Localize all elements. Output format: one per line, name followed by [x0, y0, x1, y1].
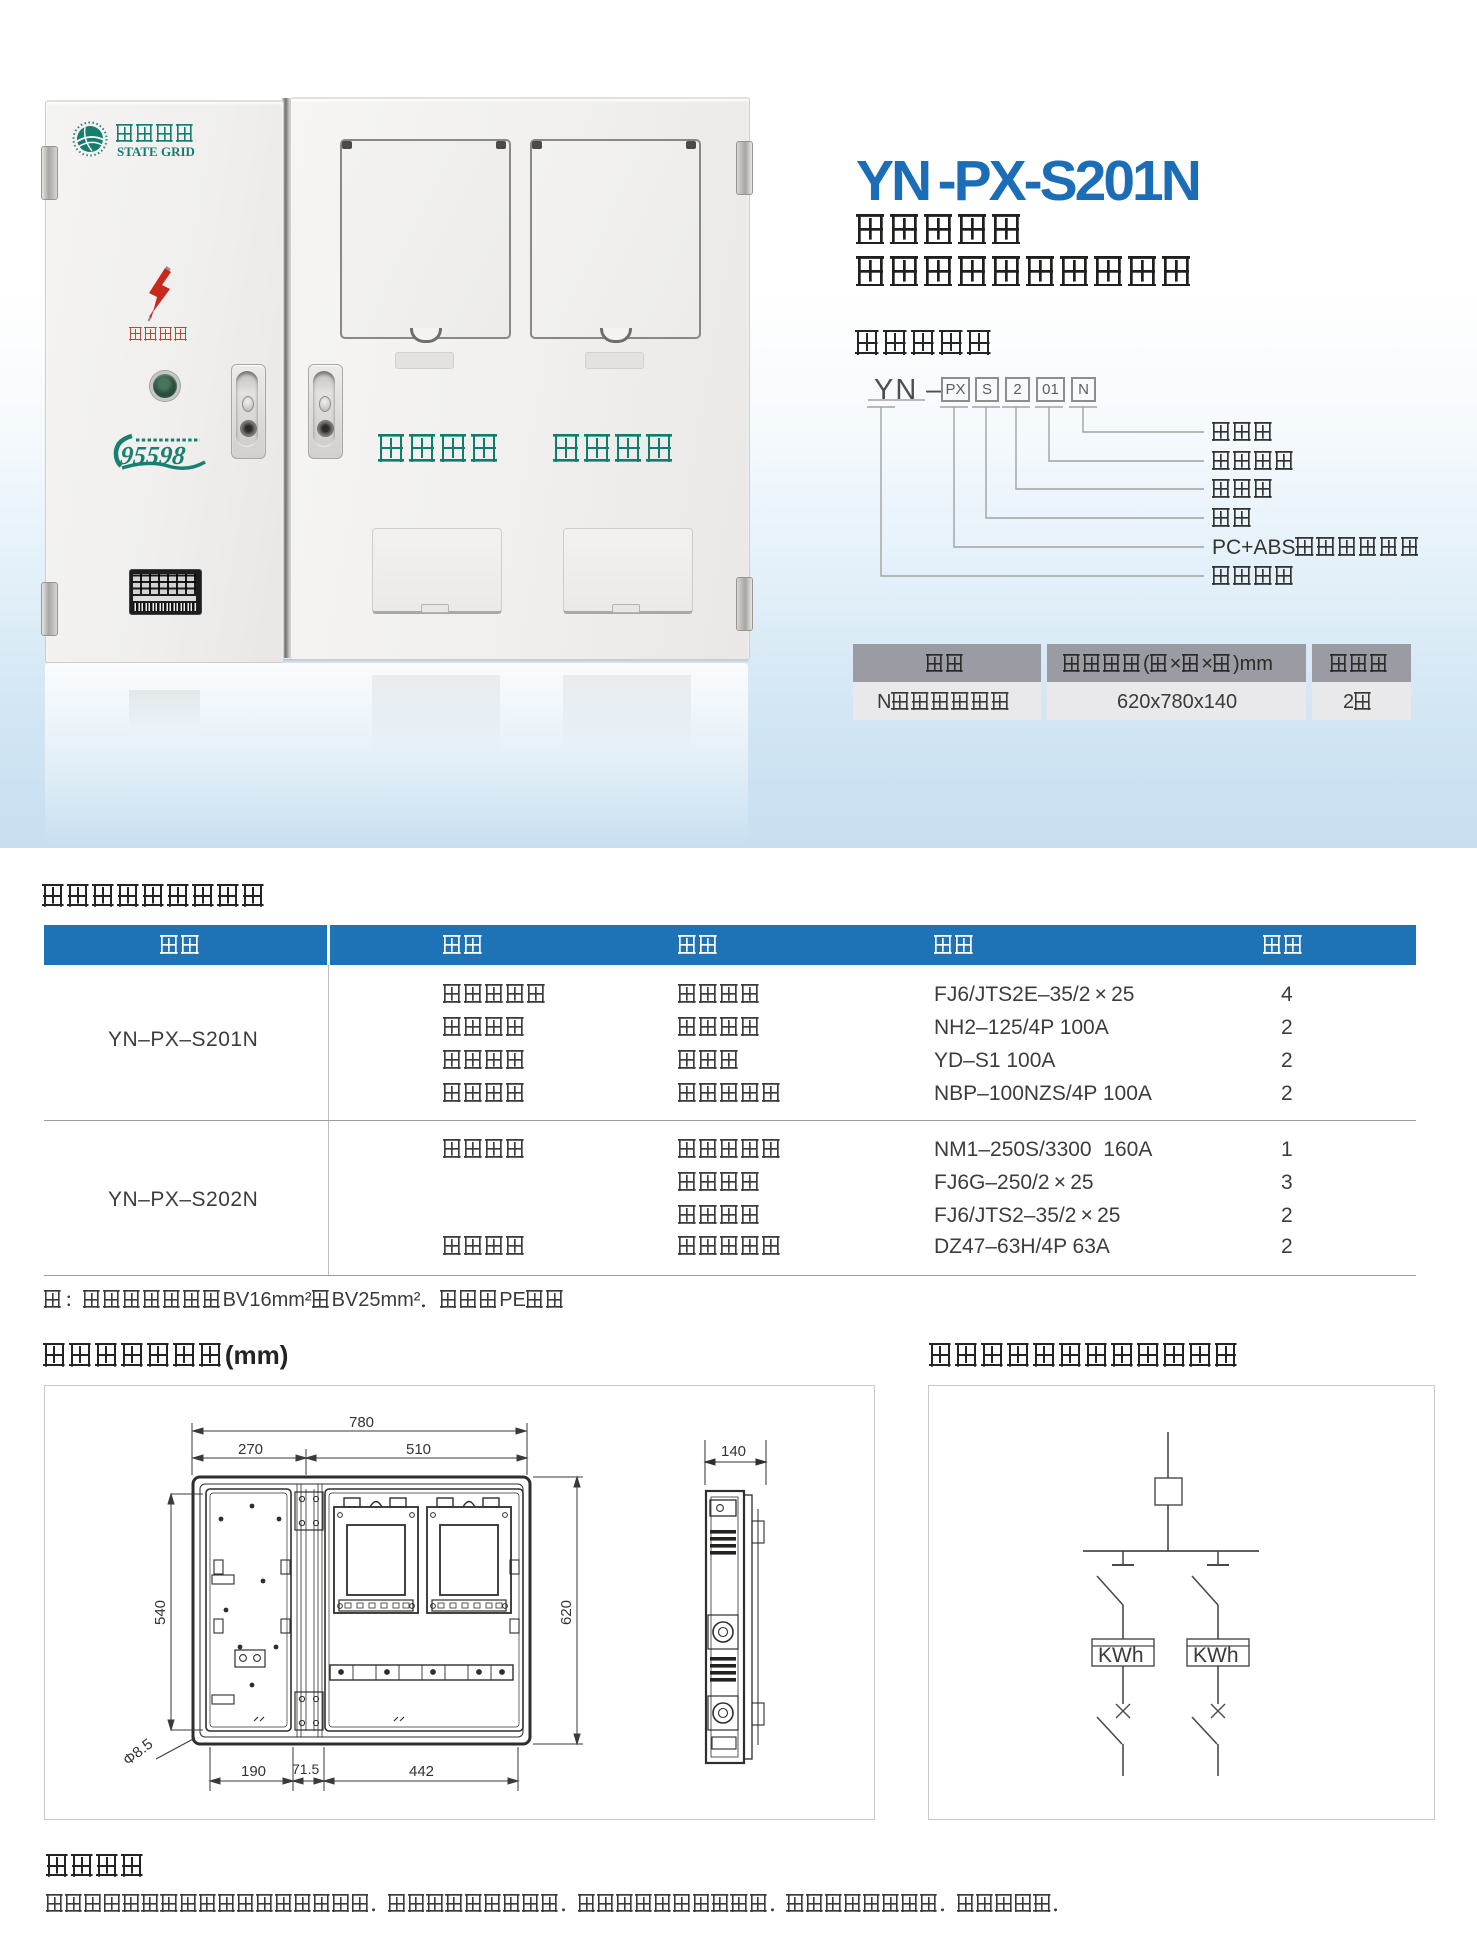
svg-text:510: 510	[406, 1441, 431, 1458]
svg-text:780: 780	[349, 1414, 374, 1431]
svg-text:190: 190	[241, 1763, 266, 1780]
svg-text:620: 620	[558, 1600, 575, 1625]
svg-text:KWh: KWh	[1193, 1644, 1239, 1667]
svg-text:KWh: KWh	[1098, 1644, 1144, 1667]
svg-text:540: 540	[152, 1600, 169, 1625]
svg-text:71.5: 71.5	[292, 1761, 319, 1777]
svg-text:442: 442	[409, 1763, 434, 1780]
svg-text:Φ8.5: Φ8.5	[120, 1736, 156, 1770]
svg-text:140: 140	[721, 1443, 746, 1460]
svg-text:270: 270	[238, 1441, 263, 1458]
